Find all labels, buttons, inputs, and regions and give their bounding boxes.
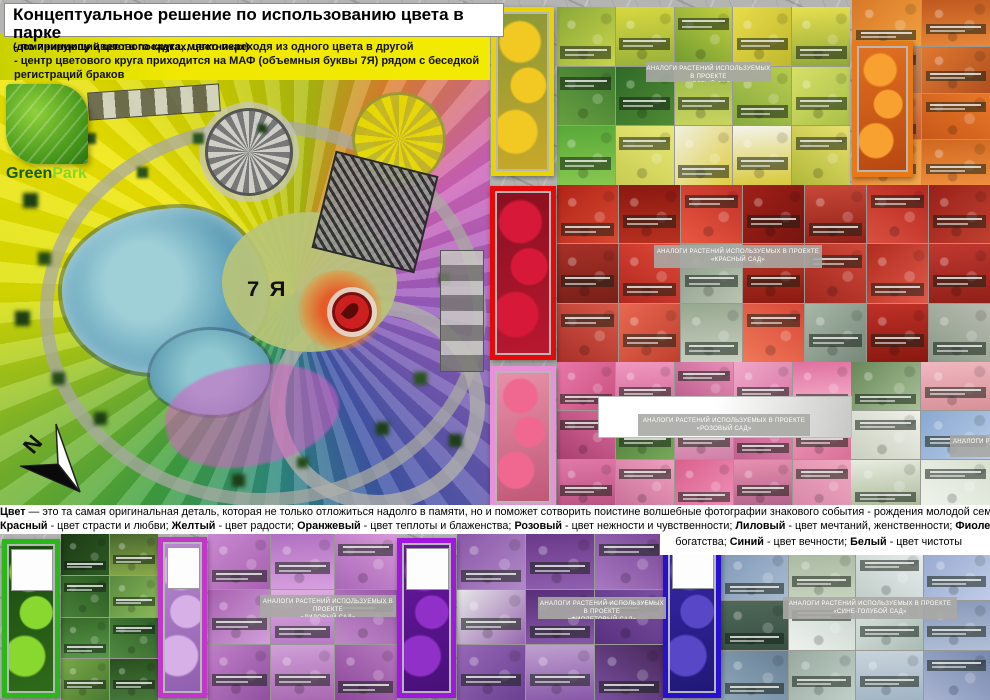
plant-caption-bar (561, 314, 615, 327)
svg-text:N: N (18, 430, 47, 458)
description-line-1: Цвет — это та самая оригинальная деталь,… (0, 506, 962, 520)
plant-caption-bar (927, 626, 986, 637)
red-garden-gallery (557, 185, 990, 362)
plant-photo-tile (856, 651, 923, 700)
plant-photo-tile (922, 140, 990, 186)
plant-photo-tile (208, 534, 270, 589)
plant-caption-bar (855, 394, 916, 405)
logo-word-park: Park (52, 165, 87, 182)
plant-photo-tile (616, 7, 674, 66)
plant-photo-tile (733, 7, 791, 66)
portrait-caption-box (406, 548, 448, 590)
plant-photo-tile (922, 94, 990, 140)
plant-photo-tile (805, 304, 866, 362)
plant-caption-bar (461, 674, 521, 686)
violet-garden-label: АНАЛОГИ РАСТЕНИЙ ИСПОЛЬЗУЕМЫХ В ПРОЕКТЕ … (538, 597, 666, 619)
plant-caption-bar (623, 283, 677, 296)
plant-caption-bar (275, 626, 330, 638)
plant-photo-tile (681, 185, 742, 243)
plant-caption-bar (530, 674, 590, 686)
plant-caption-bar (725, 633, 784, 644)
lilac-garden-label: АНАЛОГИ РАСТЕНИЙ ИСПОЛЬЗУЕМЫХ В ПРОЕКТЕ … (260, 595, 396, 617)
plant-caption-bar (619, 97, 670, 110)
plant-caption-bar (560, 157, 611, 170)
plant-photo-tile (335, 645, 397, 700)
plant-photo-tile (743, 304, 804, 362)
plant-caption-bar (737, 105, 788, 118)
yellow-garden-label: АНАЛОГИ РАСТЕНИЙ ИСПОЛЬЗУЕМЫХ В ПРОЕКТЕ … (646, 62, 771, 82)
green-garden-gallery (61, 534, 158, 700)
plant-photo-tile (851, 362, 920, 410)
lilac-garden-gallery (208, 534, 397, 700)
plant-caption-bar (933, 275, 987, 288)
plant-caption-bar (275, 562, 330, 574)
plant-caption-bar (64, 583, 106, 592)
plant-photo-tile (557, 304, 618, 362)
greenpark-logo: GreenPark (6, 84, 98, 184)
plant-caption-bar (619, 469, 670, 480)
plant-photo-tile (789, 551, 856, 600)
red-tulip-portrait (490, 186, 556, 360)
plant-photo-tile (110, 618, 158, 659)
plant-caption-bar (678, 97, 729, 110)
trees (0, 80, 1, 81)
plant-caption-bar (725, 683, 784, 694)
plant-caption-bar (275, 674, 330, 686)
plant-caption-bar (530, 626, 590, 638)
plant-photo-tile (921, 362, 990, 410)
side-structures (440, 250, 484, 372)
plant-photo-tile (792, 67, 850, 126)
plant-caption-bar (64, 644, 106, 653)
plant-caption-bar (747, 215, 801, 228)
plant-caption-bar (212, 618, 267, 630)
plant-photo-tile (271, 645, 333, 700)
plant-photo-tile (557, 67, 615, 126)
plant-photo-tile (61, 534, 109, 575)
plant-photo-tile (721, 551, 788, 600)
plant-caption-bar (212, 674, 267, 686)
plant-caption-bar (871, 283, 925, 296)
plant-caption-bar (925, 387, 986, 398)
title-block: Концептуальное решение по использованию … (4, 3, 504, 37)
plant-photo-tile (922, 47, 990, 93)
plant-caption-bar (796, 137, 847, 150)
plant-caption-bar (926, 164, 986, 174)
north-arrow-icon: N (14, 418, 104, 505)
plant-photo-tile (616, 460, 674, 508)
plant-caption-bar (685, 275, 739, 288)
leaf-logo-icon (6, 84, 88, 164)
plant-photo-tile (526, 534, 594, 589)
plant-caption-bar (796, 469, 847, 480)
pink-flower-portrait (490, 366, 556, 508)
plant-photo-tile (526, 645, 594, 700)
description-band: Цвет — это та самая оригинальная деталь,… (0, 505, 990, 534)
plant-caption-bar (560, 46, 611, 59)
plant-photo-tile (792, 7, 850, 66)
plant-caption-bar (860, 676, 919, 687)
plant-photo-tile (619, 185, 680, 243)
plant-caption-bar (871, 334, 925, 347)
presentation-board: Концептуальное решение по использованию … (0, 0, 990, 700)
plant-caption-bar (685, 342, 739, 355)
plant-photo-tile (743, 185, 804, 243)
description-line-2: Красный - цвет страсти и любви; Желтый -… (0, 520, 962, 534)
plant-caption-bar (561, 223, 615, 236)
lilac-flower-portrait (158, 537, 207, 698)
plant-photo-tile (675, 126, 733, 185)
plant-photo-tile (457, 534, 525, 589)
plant-caption-bar (725, 583, 784, 594)
plant-caption-bar (461, 618, 521, 630)
plant-caption-bar (113, 680, 155, 689)
plant-photo-tile (208, 645, 270, 700)
plant-caption-bar (678, 492, 729, 503)
yellow-garden-gallery (557, 7, 850, 185)
plant-caption-bar (856, 30, 916, 40)
plant-caption-bar (737, 443, 788, 454)
plant-photo-tile (851, 411, 920, 459)
red-garden-label: АНАЛОГИ РАСТЕНИЙ ИСПОЛЬЗУЕМЫХ В ПРОЕКТЕ … (654, 245, 822, 268)
plant-photo-tile (595, 534, 663, 589)
plant-caption-bar (113, 555, 155, 564)
plant-caption-bar (933, 215, 987, 228)
plant-photo-tile (867, 244, 928, 302)
plant-caption-bar (599, 681, 659, 693)
plant-caption-bar (792, 576, 851, 587)
plant-caption-bar (926, 24, 986, 34)
plant-caption-bar (560, 77, 611, 90)
plant-photo-tile (61, 659, 109, 700)
plant-photo-tile (681, 304, 742, 362)
blue-garden-gallery (721, 551, 990, 700)
wedding-gazebo (205, 108, 293, 196)
plant-caption-bar (792, 676, 851, 687)
plant-caption-bar (678, 18, 729, 31)
purple-phlox-portrait (397, 538, 456, 698)
plant-caption-bar (809, 223, 863, 236)
plant-caption-bar (737, 38, 788, 51)
plant-caption-bar (747, 314, 801, 327)
plant-caption-bar (113, 625, 155, 634)
plant-caption-bar (860, 560, 919, 571)
plant-caption-bar (926, 102, 986, 112)
plant-photo-tile (922, 0, 990, 46)
plant-photo-tile (734, 460, 792, 508)
plant-caption-bar (737, 157, 788, 170)
plant-photo-tile (929, 185, 990, 243)
maf-7ya-label: 7 Я (247, 278, 288, 302)
plant-caption-bar (623, 334, 677, 347)
plant-caption-bar (461, 570, 521, 582)
plant-photo-tile (789, 651, 856, 700)
plant-photo-tile (721, 651, 788, 700)
plant-caption-bar (927, 576, 986, 587)
plant-caption-bar (623, 215, 677, 228)
plant-caption-bar (747, 275, 801, 288)
plant-photo-tile (924, 651, 990, 700)
plant-caption-bar (64, 680, 106, 689)
plant-photo-tile (457, 645, 525, 700)
plant-caption-bar (796, 97, 847, 110)
portrait-caption-box (11, 549, 52, 591)
pink-garden-label: АНАЛОГИ РАСТЕНИЙ ИСПОЛЬЗУЕМЫХ В ПРОЕКТЕ … (638, 414, 810, 436)
plant-photo-tile (335, 534, 397, 589)
plant-photo-tile (856, 551, 923, 600)
plant-caption-bar (685, 195, 739, 208)
plant-photo-tile (616, 126, 674, 185)
plant-caption-bar (561, 275, 615, 288)
page-subtitle: (доминирующий цвет в посадках, цветниках… (13, 42, 495, 53)
plant-caption-bar (113, 597, 155, 606)
park-master-plan: 7 Я GreenPark N (0, 80, 490, 505)
plant-photo-tile (619, 304, 680, 362)
note-line-2: - центр цветового круга приходится на МА… (14, 54, 490, 82)
plant-photo-tile (867, 185, 928, 243)
plant-caption-bar (796, 46, 847, 59)
plant-caption-bar (678, 371, 729, 382)
description-band-continued: богатства; Синий - цвет вечности; Белый … (660, 534, 990, 555)
plant-caption-bar (560, 485, 611, 496)
plant-caption-bar (338, 681, 393, 693)
plant-caption-bar (855, 420, 916, 431)
plant-caption-bar (599, 544, 659, 556)
plant-photo-tile (110, 534, 158, 575)
plant-photo-tile (721, 601, 788, 650)
plant-photo-tile (595, 645, 663, 700)
description-line-3: богатства; Синий - цвет вечности; Белый … (660, 536, 962, 550)
plant-photo-tile (929, 244, 990, 302)
plant-photo-tile (271, 534, 333, 589)
plant-photo-tile (675, 460, 733, 508)
plant-photo-tile (110, 576, 158, 617)
plant-photo-tile (793, 460, 851, 508)
plant-photo-tile (867, 304, 928, 362)
location-marker-icon (332, 292, 372, 332)
plant-caption-bar (855, 492, 916, 503)
plant-caption-bar (926, 71, 986, 81)
plant-photo-tile (805, 185, 866, 243)
orange-flower-portrait (852, 41, 913, 177)
plant-photo-tile (851, 460, 920, 508)
plant-photo-tile (924, 551, 990, 600)
plant-caption-bar (619, 38, 670, 51)
plant-photo-tile (929, 304, 990, 362)
plant-photo-tile (457, 590, 525, 645)
plant-photo-tile (61, 576, 109, 617)
plant-caption-bar (64, 561, 106, 570)
plant-photo-tile (557, 244, 618, 302)
plant-caption-bar (925, 469, 986, 480)
plant-caption-bar (212, 570, 267, 582)
white-garden-label: АНАЛОГИ РАСТЕНИЙ ИСПОЛЬЗУЕМЫХ В ПРОЕКТЕ (950, 435, 990, 457)
blue-bellflower-portrait (663, 537, 721, 698)
plant-caption-bar (737, 485, 788, 496)
green-conifer-portrait (2, 539, 60, 698)
plant-photo-tile (557, 7, 615, 66)
plant-caption-bar (338, 544, 393, 556)
plant-caption-bar (619, 137, 670, 150)
plant-caption-bar (809, 334, 863, 347)
page-title: Концептуальное решение по использованию … (13, 6, 495, 42)
plant-caption-bar (927, 660, 986, 671)
plant-photo-tile (557, 185, 618, 243)
plant-caption-bar (678, 165, 729, 178)
plant-photo-tile (110, 659, 158, 700)
blue-garden-label: АНАЛОГИ РАСТЕНИЙ ИСПОЛЬЗУЕМЫХ В ПРОЕКТЕ … (783, 597, 957, 619)
plant-caption-bar (871, 195, 925, 208)
portrait-caption-box (167, 547, 201, 589)
plant-photo-tile (675, 7, 733, 66)
logo-word-green: Green (6, 165, 52, 182)
plant-caption-bar (860, 626, 919, 637)
plant-photo-tile (557, 126, 615, 185)
plant-caption-bar (530, 562, 590, 574)
plant-photo-tile (557, 460, 615, 508)
plant-photo-tile (61, 618, 109, 659)
plant-photo-tile (733, 126, 791, 185)
plant-photo-tile (921, 460, 990, 508)
plant-photo-tile (792, 126, 850, 185)
plant-caption-bar (933, 342, 987, 355)
plant-photo-tile (852, 0, 921, 46)
